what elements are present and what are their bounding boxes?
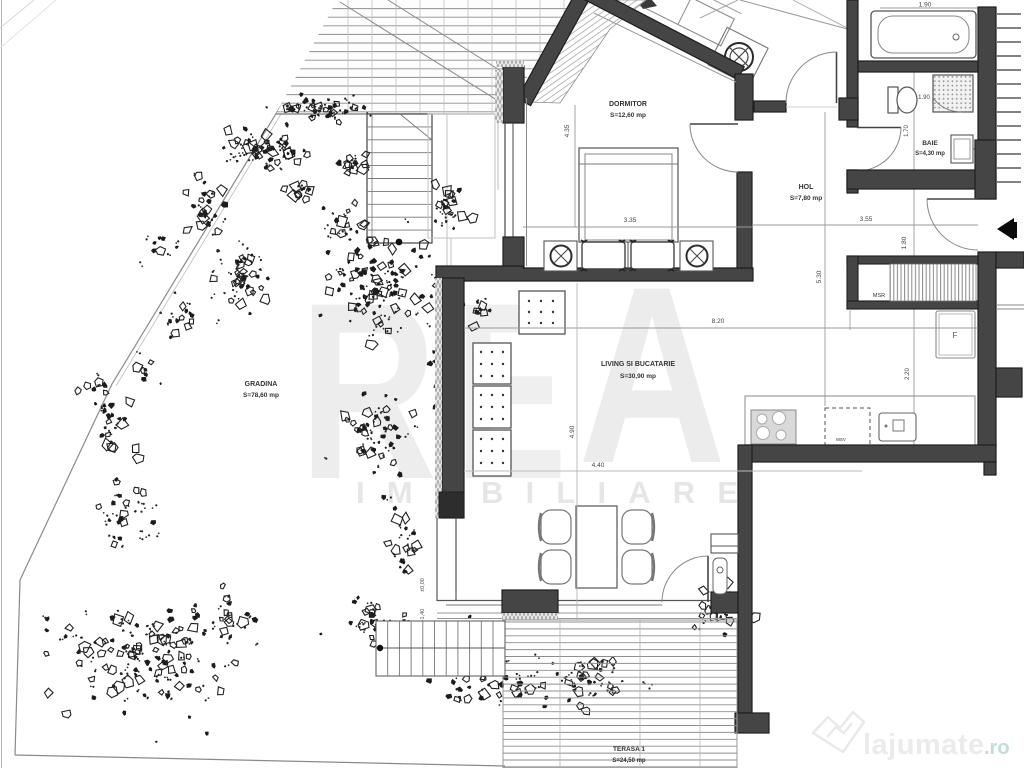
svg-text:MSV: MSV bbox=[836, 437, 846, 442]
svg-text:.ro: .ro bbox=[984, 737, 1010, 759]
svg-text:8.20: 8.20 bbox=[712, 318, 725, 325]
svg-text:S=12,60 mp: S=12,60 mp bbox=[610, 112, 646, 119]
svg-text:4.40: 4.40 bbox=[592, 462, 605, 469]
svg-text:±0,00: ±0,00 bbox=[420, 578, 426, 592]
svg-text:4.90: 4.90 bbox=[569, 425, 576, 438]
svg-text:GRADINA: GRADINA bbox=[245, 381, 278, 388]
svg-text:4.35: 4.35 bbox=[564, 124, 571, 137]
svg-text:BAIE: BAIE bbox=[922, 140, 938, 147]
svg-text:S=24,50 mp: S=24,50 mp bbox=[612, 758, 646, 764]
svg-text:F: F bbox=[953, 331, 958, 340]
svg-text:S=4,30 mp: S=4,30 mp bbox=[915, 151, 945, 157]
svg-text:1.90: 1.90 bbox=[919, 2, 932, 9]
svg-text:TERASA 1: TERASA 1 bbox=[613, 746, 645, 753]
svg-text:DORMITOR: DORMITOR bbox=[609, 101, 647, 108]
svg-text:lajumate: lajumate bbox=[863, 729, 985, 761]
svg-text:1.70: 1.70 bbox=[904, 125, 910, 137]
svg-text:S=7,80 mp: S=7,80 mp bbox=[790, 195, 822, 202]
svg-text:S=78,60 mp: S=78,60 mp bbox=[243, 392, 279, 399]
svg-text:LIVING SI BUCATARIE: LIVING SI BUCATARIE bbox=[601, 361, 675, 368]
svg-text:HOL: HOL bbox=[799, 184, 815, 191]
svg-text:MSR: MSR bbox=[873, 293, 885, 299]
svg-text:-1,40: -1,40 bbox=[420, 609, 426, 622]
svg-text:3.55: 3.55 bbox=[860, 216, 873, 223]
svg-text:3.35: 3.35 bbox=[624, 217, 637, 224]
svg-text:S=30,90 mp: S=30,90 mp bbox=[620, 373, 656, 380]
svg-text:1.80: 1.80 bbox=[901, 236, 908, 249]
svg-text:2.20: 2.20 bbox=[905, 368, 911, 380]
svg-text:5.30: 5.30 bbox=[816, 270, 823, 283]
svg-text:1.90: 1.90 bbox=[918, 95, 930, 101]
